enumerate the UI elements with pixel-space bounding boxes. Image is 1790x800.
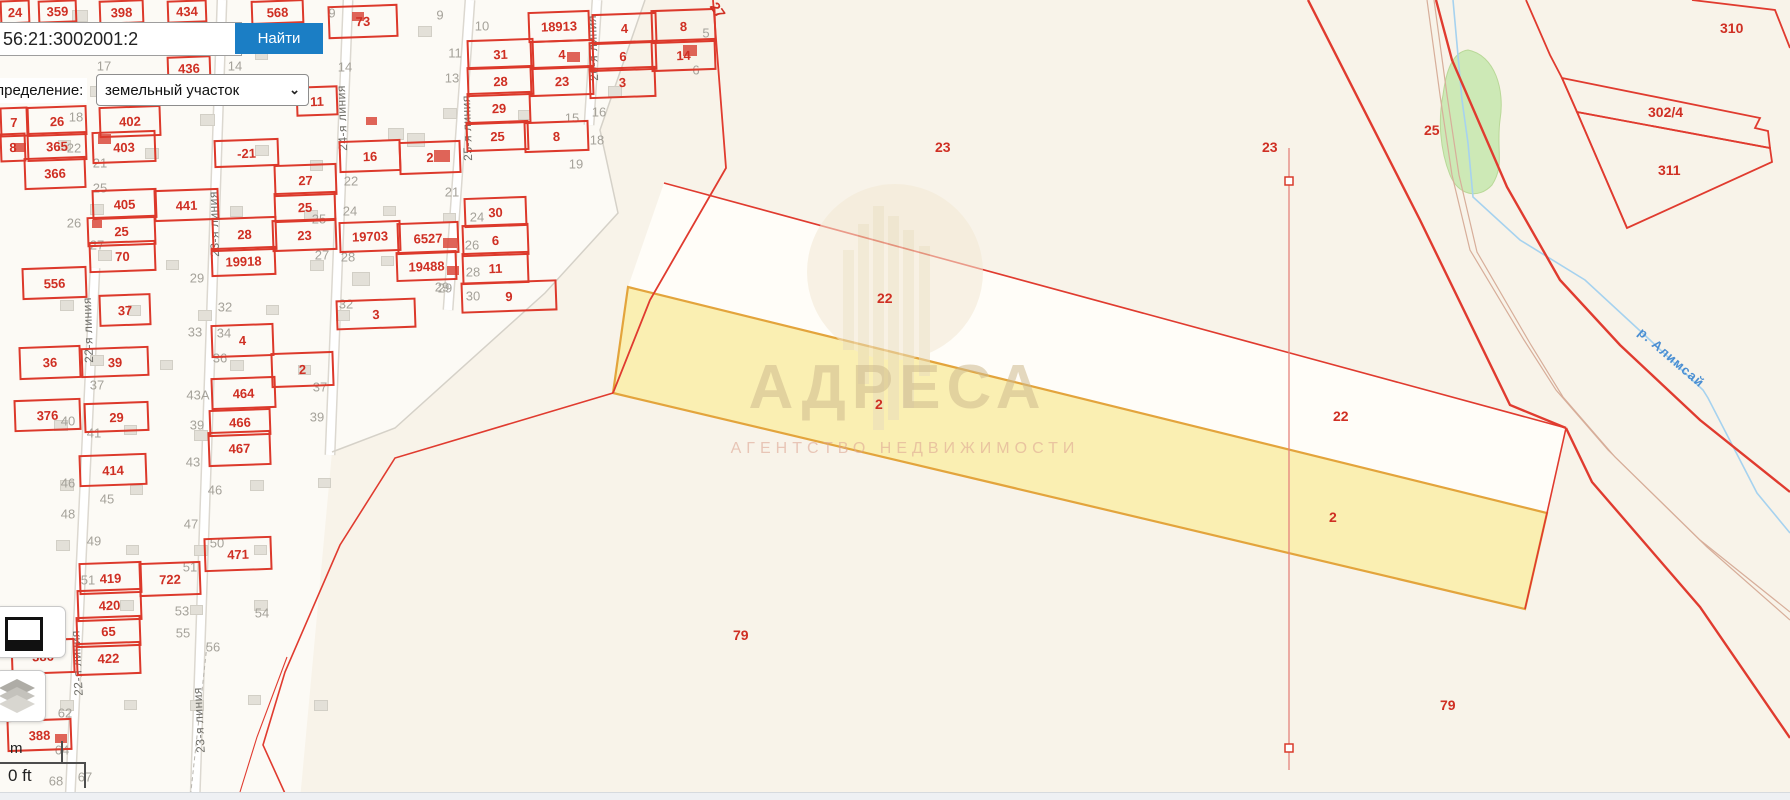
- parcel-4[interactable]: 4: [210, 323, 274, 358]
- parcel-number: 18913: [541, 18, 578, 34]
- quarter-label-302/4: 302/4: [1648, 104, 1683, 120]
- parcel-24[interactable]: 24: [0, 0, 30, 25]
- parcel-number: 36: [43, 355, 58, 370]
- parcel-19488[interactable]: 19488: [395, 250, 457, 282]
- parcel-39[interactable]: 39: [80, 346, 149, 378]
- house-number: 13: [445, 71, 459, 86]
- parcel-number: 398: [110, 4, 132, 20]
- object-type-value: земельный участок: [105, 82, 239, 99]
- cadastral-map-app: 2435939843456873436111891348314614282332…: [0, 0, 1790, 800]
- house-number: 46: [61, 476, 75, 491]
- parcel-number: 11: [310, 93, 324, 108]
- watermark-title: АДРЕСА: [725, 352, 1070, 423]
- parcel-number: 365: [46, 139, 68, 155]
- building-footprint: [200, 114, 215, 126]
- filter-label: пределение:: [0, 78, 87, 103]
- house-number: 16: [592, 105, 606, 120]
- parcel-number: 65: [101, 624, 116, 639]
- quarter-label-23: 23: [1262, 139, 1278, 155]
- parcel-number: 16: [363, 148, 378, 163]
- parcel-number: 376: [36, 407, 58, 423]
- scale-bar-tick-m: [61, 741, 63, 764]
- parcel-number: 31: [493, 46, 508, 61]
- parcel-73[interactable]: 73: [327, 4, 398, 39]
- building-footprint: [230, 360, 244, 371]
- parcel-number: 471: [227, 546, 249, 562]
- parcel-number: 4: [621, 21, 629, 36]
- parcel-number: 403: [113, 139, 135, 155]
- house-number: 54: [255, 606, 269, 621]
- scale-bar-line: [0, 762, 86, 764]
- parcel-422[interactable]: 422: [75, 641, 141, 676]
- house-number: 21: [445, 185, 459, 200]
- parcel-2[interactable]: 2: [398, 140, 461, 175]
- parcel-number: 556: [43, 275, 65, 291]
- object-type-select[interactable]: земельный участок ⌄: [96, 74, 309, 106]
- quarter-label-22: 22: [877, 290, 893, 306]
- parcel-number: 359: [46, 4, 68, 20]
- registered-building: [366, 117, 377, 125]
- parcel-number: 722: [159, 571, 181, 587]
- parcel-number: 422: [97, 651, 119, 667]
- parcel-414[interactable]: 414: [78, 453, 147, 487]
- parcel-36[interactable]: 36: [18, 345, 81, 380]
- house-number: 53: [175, 604, 189, 619]
- parcel-2[interactable]: 2: [270, 351, 334, 388]
- parcel-number: 39: [108, 354, 123, 369]
- house-number: 48: [61, 507, 75, 522]
- parcel-464[interactable]: 464: [210, 376, 276, 410]
- parcel--21[interactable]: -21: [214, 138, 280, 168]
- parcel-29[interactable]: 29: [83, 401, 149, 433]
- parcel-434[interactable]: 434: [167, 0, 208, 24]
- parcel-number: 8: [553, 129, 561, 144]
- layers-button[interactable]: [0, 670, 46, 722]
- parcel-number: 3: [619, 75, 627, 90]
- house-number: 49: [87, 534, 101, 549]
- parcel-14[interactable]: 14: [650, 38, 716, 72]
- quarter-label-2: 2: [1329, 509, 1337, 525]
- parcel-number: 8: [9, 140, 17, 155]
- parcel-19918[interactable]: 19918: [211, 246, 277, 277]
- chevron-down-icon: ⌄: [289, 82, 300, 98]
- parcel-number: 9: [505, 289, 513, 304]
- parcel-722[interactable]: 722: [138, 561, 201, 597]
- parcel-number: 4: [558, 47, 566, 62]
- house-number: 24: [343, 204, 357, 219]
- house-number: 55: [176, 626, 190, 641]
- parcel-number: 23: [297, 227, 312, 242]
- map-bottom-edge: [0, 792, 1790, 800]
- parcel-8[interactable]: 8: [523, 120, 589, 153]
- house-number: 32: [218, 300, 232, 315]
- parcel-number: 28: [237, 226, 252, 241]
- parcel-568[interactable]: 568: [251, 0, 305, 25]
- house-number: 18: [590, 133, 604, 148]
- parcel-number: 402: [119, 114, 141, 130]
- building-footprint: [314, 700, 328, 711]
- parcel-9[interactable]: 9: [460, 279, 557, 313]
- parcel-23[interactable]: 23: [271, 218, 337, 252]
- parcel-19703[interactable]: 19703: [338, 220, 401, 253]
- building-footprint: [198, 310, 212, 321]
- layers-icon: [0, 671, 43, 719]
- building-footprint: [190, 605, 203, 615]
- building-footprint: [126, 545, 139, 555]
- parcel-number: 25: [490, 128, 505, 143]
- parcel-number: 24: [8, 4, 23, 19]
- house-number: 11: [448, 46, 462, 61]
- house-number: 45: [100, 492, 114, 507]
- building-footprint: [248, 695, 261, 705]
- parcel-number: 6: [492, 232, 500, 247]
- parcel-number: 420: [98, 597, 120, 613]
- quarter-label-310: 310: [1720, 20, 1743, 36]
- quarter-label-79: 79: [733, 627, 749, 643]
- house-number: 43А: [186, 388, 209, 403]
- parcel-number: 4: [239, 333, 247, 348]
- basemap-switcher-button[interactable]: [0, 606, 66, 658]
- house-number: 39: [310, 410, 324, 425]
- parcel-number: 28: [493, 73, 508, 88]
- parcel-number: 434: [176, 4, 198, 20]
- parcel-number: 6527: [413, 230, 442, 246]
- house-number: 26: [67, 216, 81, 231]
- parcel-25[interactable]: 25: [465, 120, 529, 152]
- parcel-number: 70: [115, 249, 130, 264]
- building-footprint: [166, 260, 179, 270]
- parcel-3[interactable]: 3: [588, 66, 656, 99]
- parcel-number: 467: [228, 441, 250, 457]
- house-number: 29: [190, 271, 204, 286]
- quarter-label-22: 22: [1333, 408, 1349, 424]
- parcel-number: 3: [372, 306, 380, 321]
- village-area: [0, 0, 645, 800]
- parcel-70[interactable]: 70: [88, 240, 156, 273]
- parcel-number: 568: [266, 4, 288, 20]
- house-number: 43: [186, 455, 200, 470]
- parcel-number: 30: [488, 204, 503, 219]
- parcel-number: 8: [680, 18, 688, 33]
- parcel-471[interactable]: 471: [203, 536, 272, 572]
- parcel-number: 23: [555, 73, 570, 88]
- building-footprint: [381, 256, 394, 266]
- parcel-23[interactable]: 23: [529, 65, 594, 97]
- parcel-number: 2: [426, 150, 434, 165]
- search-button[interactable]: Найти: [235, 23, 323, 54]
- parcel-403[interactable]: 403: [91, 130, 156, 164]
- building-footprint: [352, 272, 370, 286]
- parcel-number: 25: [298, 199, 313, 214]
- building-footprint: [130, 485, 143, 495]
- parcel-366[interactable]: 366: [23, 156, 86, 190]
- parcel-number: 73: [356, 14, 371, 29]
- building-footprint: [230, 206, 243, 217]
- watermark-subtitle: АГЕНТСТВО НЕДВИЖИМОСТИ: [725, 440, 1085, 458]
- parcel-number: 7: [10, 114, 18, 129]
- parcel-37[interactable]: 37: [98, 293, 151, 327]
- parcel-376[interactable]: 376: [13, 398, 81, 432]
- basemap-thumbnail-icon: [5, 617, 43, 651]
- house-number: 14: [338, 60, 352, 75]
- parcel-18913[interactable]: 18913: [527, 10, 590, 43]
- parcel-441[interactable]: 441: [153, 188, 219, 222]
- house-number: 29: [435, 280, 449, 295]
- quarter-label-79: 79: [1440, 697, 1456, 713]
- parcel-number: 29: [492, 100, 507, 115]
- parcel-number: 419: [99, 570, 121, 586]
- house-number: 56: [206, 640, 220, 655]
- building-footprint: [160, 360, 173, 370]
- parcel-number: 25: [114, 223, 129, 238]
- parcel-number: 29: [109, 409, 124, 424]
- parcel-number: 2: [299, 362, 307, 377]
- building-footprint: [266, 305, 279, 315]
- parcel-number: 464: [232, 385, 254, 401]
- building-footprint: [418, 26, 432, 37]
- house-number: 46: [208, 483, 222, 498]
- building-footprint: [56, 540, 70, 551]
- house-number: 37: [90, 378, 104, 393]
- house-number: 39: [190, 418, 204, 433]
- parcel-467[interactable]: 467: [207, 430, 271, 467]
- parcel-number: 14: [676, 47, 691, 62]
- parcel-556[interactable]: 556: [21, 266, 87, 300]
- parcel-number: 27: [298, 172, 313, 187]
- building-footprint: [250, 480, 264, 491]
- parcel-number: 19918: [225, 253, 262, 269]
- house-number: 47: [184, 517, 198, 532]
- house-number: 19: [569, 157, 583, 172]
- parcel-number: 388: [28, 727, 50, 743]
- parcel-16[interactable]: 16: [338, 139, 401, 173]
- parcel-number: 441: [175, 197, 197, 213]
- parcel-number: 466: [229, 415, 251, 431]
- parcel-number: 405: [113, 196, 135, 212]
- parcel-number: 366: [44, 165, 66, 181]
- parcel-359[interactable]: 359: [38, 0, 78, 24]
- quarter-label-311: 311: [1658, 162, 1681, 178]
- survey-node-bottom: [1285, 744, 1293, 752]
- house-number: 17: [97, 59, 111, 74]
- quarter-label-23: 23: [935, 139, 951, 155]
- house-number: 10: [475, 19, 489, 34]
- parcel-number: 19703: [352, 228, 389, 244]
- scale-ft-label: 0 ft: [8, 766, 32, 786]
- parcel-number: -21: [237, 145, 256, 161]
- house-number: 33: [188, 325, 202, 340]
- search-input[interactable]: [0, 22, 242, 56]
- building-footprint: [443, 108, 457, 119]
- scale-bar-tick-ft: [84, 762, 86, 788]
- building-footprint: [383, 206, 396, 216]
- house-number: 9: [436, 8, 443, 23]
- survey-node-top: [1285, 177, 1293, 185]
- building-footprint: [124, 700, 137, 710]
- parcel-number: 37: [118, 302, 133, 317]
- quarter-label-25: 25: [1424, 122, 1440, 138]
- scale-m-label: m: [10, 740, 23, 757]
- building-footprint: [318, 478, 331, 488]
- parcel-3[interactable]: 3: [336, 298, 417, 331]
- parcel-number: 19488: [408, 258, 445, 274]
- house-number: 14: [228, 59, 242, 74]
- building-footprint: [60, 300, 74, 311]
- house-number: 22: [344, 174, 358, 189]
- house-number: 68: [49, 774, 63, 789]
- parcel-number: 26: [50, 113, 65, 128]
- parcel-number: 11: [488, 260, 502, 275]
- parcel-number: 414: [102, 462, 124, 478]
- parcel-number: 6: [619, 48, 627, 63]
